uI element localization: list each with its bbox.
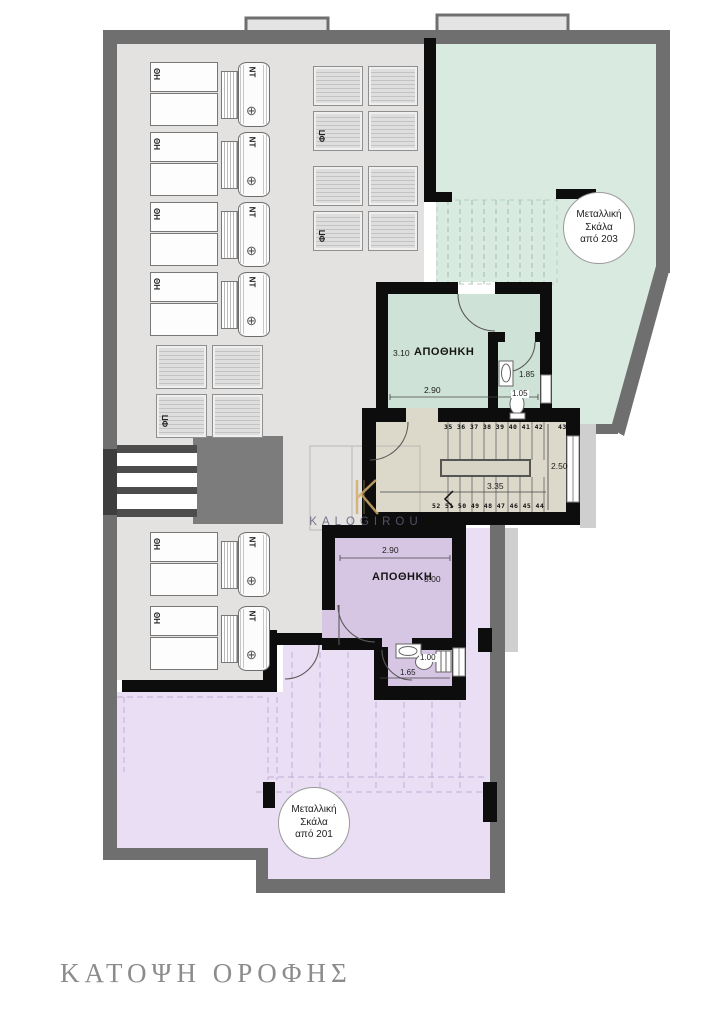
tank-label: ΝΤ xyxy=(247,537,255,548)
solar-panel-label: ΗΘ xyxy=(154,612,162,624)
dim-wc-upper-1: 1.85 xyxy=(519,371,535,379)
dim-wc-lower-2: 1.65 xyxy=(400,669,416,677)
note-line: Μεταλλική xyxy=(576,209,621,222)
tank-port-icon: ⊕ xyxy=(246,574,257,587)
pv-panel-group: ΦΠ xyxy=(313,66,418,151)
solar-heater-unit: ΗΘ ΝΤ ⊕ xyxy=(150,132,268,196)
note-line: από 203 xyxy=(580,234,618,247)
pv-panel xyxy=(368,166,418,206)
stair-handrail xyxy=(441,460,530,476)
note-line: Σκάλα xyxy=(300,817,327,830)
solar-panel xyxy=(150,637,218,670)
dim-storage-upper-width: 2.90 xyxy=(424,386,441,395)
tank-label: ΝΤ xyxy=(247,611,255,622)
solar-panel-label: ΗΘ xyxy=(154,138,162,150)
floor-plan-drawing xyxy=(0,0,724,1024)
stair-numbers-upper-run: 35 36 37 38 39 40 41 42 xyxy=(444,424,543,431)
stair-numbers-lower-run: 52 51 50 49 48 47 46 45 44 xyxy=(432,503,544,510)
pv-panel xyxy=(313,166,363,206)
plan-title: ΚΑΤΟΨΗ ΟΡΟΦΗΣ xyxy=(60,958,352,989)
tank-label: ΝΤ xyxy=(247,277,255,288)
solar-panel xyxy=(150,93,218,126)
solar-panel xyxy=(150,563,218,596)
tank-port-icon: ⊕ xyxy=(246,314,257,327)
tank-port-icon: ⊕ xyxy=(246,648,257,661)
dim-stair-depth: 2.50 xyxy=(551,462,568,471)
solar-heater-unit: ΗΘ ΝΤ ⊕ xyxy=(150,272,268,336)
solar-panel xyxy=(150,163,218,196)
dim-stair-width: 3.35 xyxy=(487,482,504,491)
tank-port-icon: ⊕ xyxy=(246,174,257,187)
solar-heater-unit: ΗΘ ΝΤ ⊕ xyxy=(150,202,268,266)
tank-label: ΝΤ xyxy=(247,207,255,218)
pv-label: ΦΠ xyxy=(162,415,170,427)
pv-panel xyxy=(156,345,207,389)
pv-panel xyxy=(368,66,418,106)
metal-stair-201-note: Μεταλλική Σκάλα από 201 xyxy=(278,787,350,859)
pv-label: ΦΠ xyxy=(319,130,327,142)
floor-plan-canvas: ΗΘ ΝΤ ⊕ ΗΘ ΝΤ ⊕ ΗΘ ΝΤ ⊕ ΗΘ ΝΤ ⊕ ΗΘ ΝΤ ⊕ … xyxy=(0,0,724,1024)
pipe-connector xyxy=(221,71,238,119)
note-line: από 201 xyxy=(295,829,333,842)
tank-port-icon: ⊕ xyxy=(246,104,257,117)
pipe-connector xyxy=(221,141,238,189)
pipe-connector xyxy=(221,615,238,663)
note-line: Μεταλλική xyxy=(291,804,336,817)
tank-label: ΝΤ xyxy=(247,67,255,78)
stair-number-43: 43 xyxy=(558,424,567,431)
dim-storage-upper-depth: 3.10 xyxy=(393,349,410,358)
dim-wc-upper-2: 1.05 xyxy=(511,390,529,398)
pv-label: ΦΠ xyxy=(319,230,327,242)
pv-panel-group: ΦΠ xyxy=(313,166,418,251)
solar-heater-unit: ΗΘ ΝΤ ⊕ xyxy=(150,606,268,670)
solar-panel-label: ΗΘ xyxy=(154,278,162,290)
note-line: Σκάλα xyxy=(585,222,612,235)
louver-grille xyxy=(103,445,197,517)
storage-upper-label: ΑΠΟΘΗΚΗ xyxy=(414,347,474,358)
solar-panel-label: ΗΘ xyxy=(154,538,162,550)
pv-panel xyxy=(313,66,363,106)
pipe-connector xyxy=(221,541,238,589)
pv-panel xyxy=(368,111,418,151)
pv-panel xyxy=(368,211,418,251)
solar-panel-label: ΗΘ xyxy=(154,208,162,220)
tank-port-icon: ⊕ xyxy=(246,244,257,257)
pipe-connector xyxy=(221,211,238,259)
solar-heater-unit: ΗΘ ΝΤ ⊕ xyxy=(150,62,268,126)
dim-wc-lower-1: 1.00 xyxy=(419,654,437,662)
solar-panel xyxy=(150,303,218,336)
tank-label: ΝΤ xyxy=(247,137,255,148)
pipe-connector xyxy=(221,281,238,329)
dim-storage-lower-width: 2.90 xyxy=(382,546,399,555)
pv-panel xyxy=(212,394,263,438)
solar-panel-label: ΗΘ xyxy=(154,68,162,80)
solar-heater-unit: ΗΘ ΝΤ ⊕ xyxy=(150,532,268,596)
pv-panel-group: ΦΠ xyxy=(156,345,263,438)
pv-panel xyxy=(212,345,263,389)
solar-panel xyxy=(150,233,218,266)
brand-watermark: KALOGIROU xyxy=(308,516,424,528)
metal-stair-203-note: Μεταλλική Σκάλα από 203 xyxy=(563,192,635,264)
dim-storage-lower-depth: 3.00 xyxy=(424,575,441,584)
elevator-block xyxy=(193,436,283,524)
